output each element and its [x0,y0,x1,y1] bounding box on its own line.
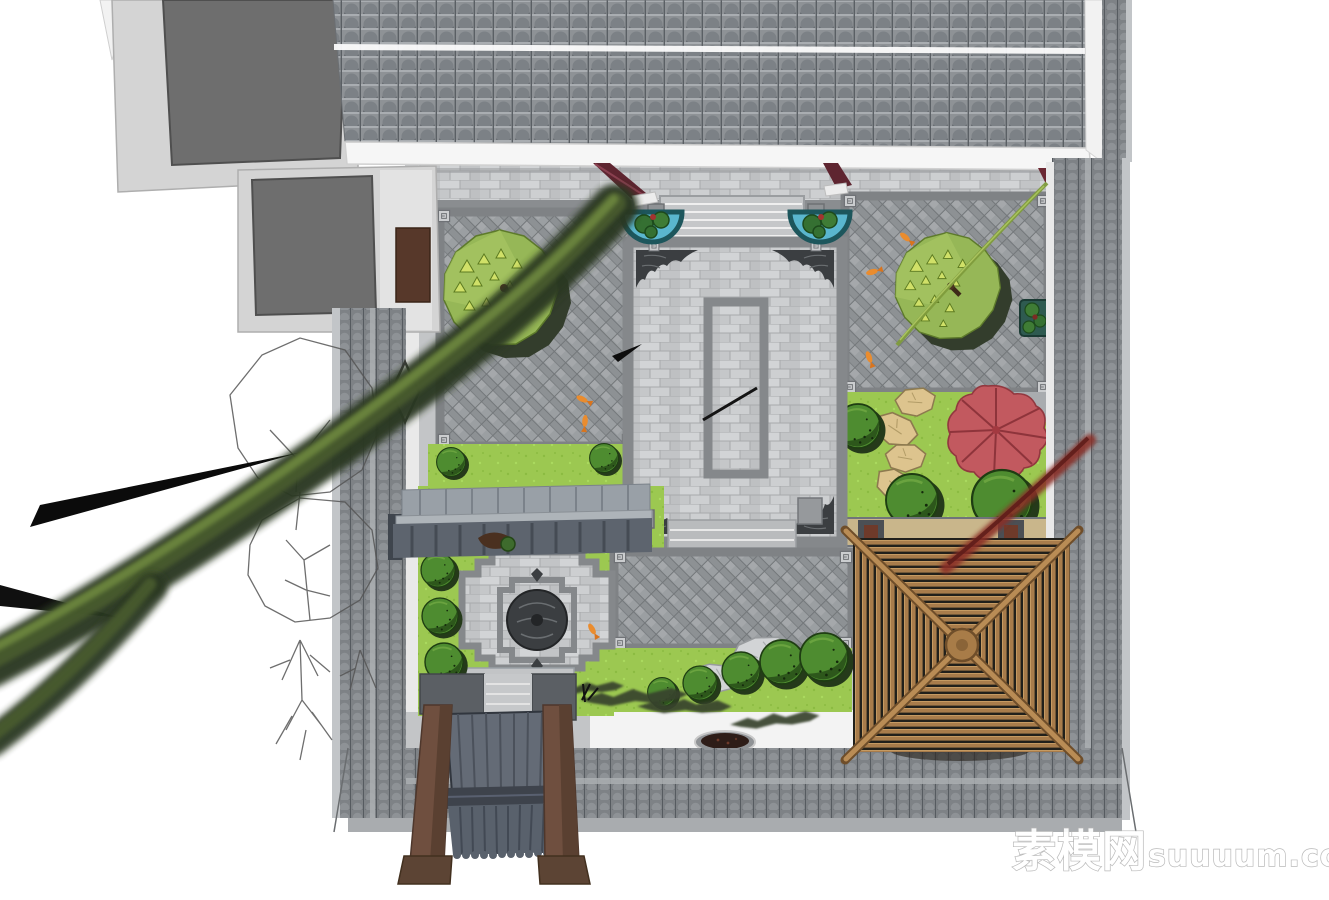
covered-corridor-roof [388,484,652,560]
perimeter-wall-right [1102,0,1126,162]
garden-3d-render-stage: 素模网 suuuum.com [0,0,1329,900]
main-tiled-roof [333,0,1108,170]
wall-planter [1020,300,1050,336]
garden-3d-render: 素模网 suuuum.com [0,0,1329,900]
watermark-en: suuuum.com [1148,839,1329,874]
side-door [396,228,430,302]
watermark-cn: 素模网 [1012,826,1147,877]
wooden-pavilion [845,530,1079,761]
entrance-gate [398,674,590,884]
red-maple-tree [948,386,1047,481]
